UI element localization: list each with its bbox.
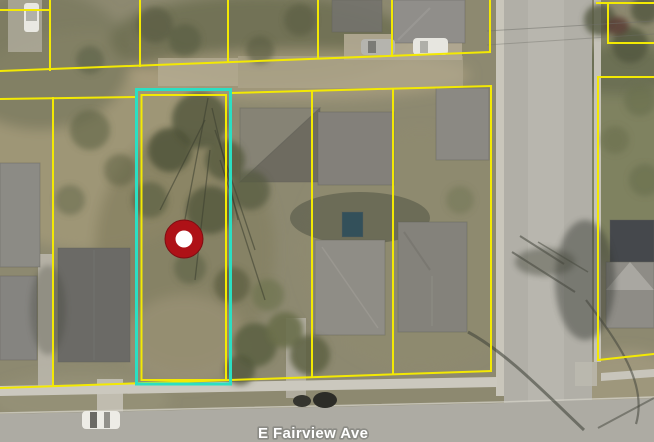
aerial-map-view[interactable]: E Fairview Ave <box>0 0 654 442</box>
street-name-label: E Fairview Ave <box>258 425 368 442</box>
location-marker-icon <box>165 220 203 258</box>
